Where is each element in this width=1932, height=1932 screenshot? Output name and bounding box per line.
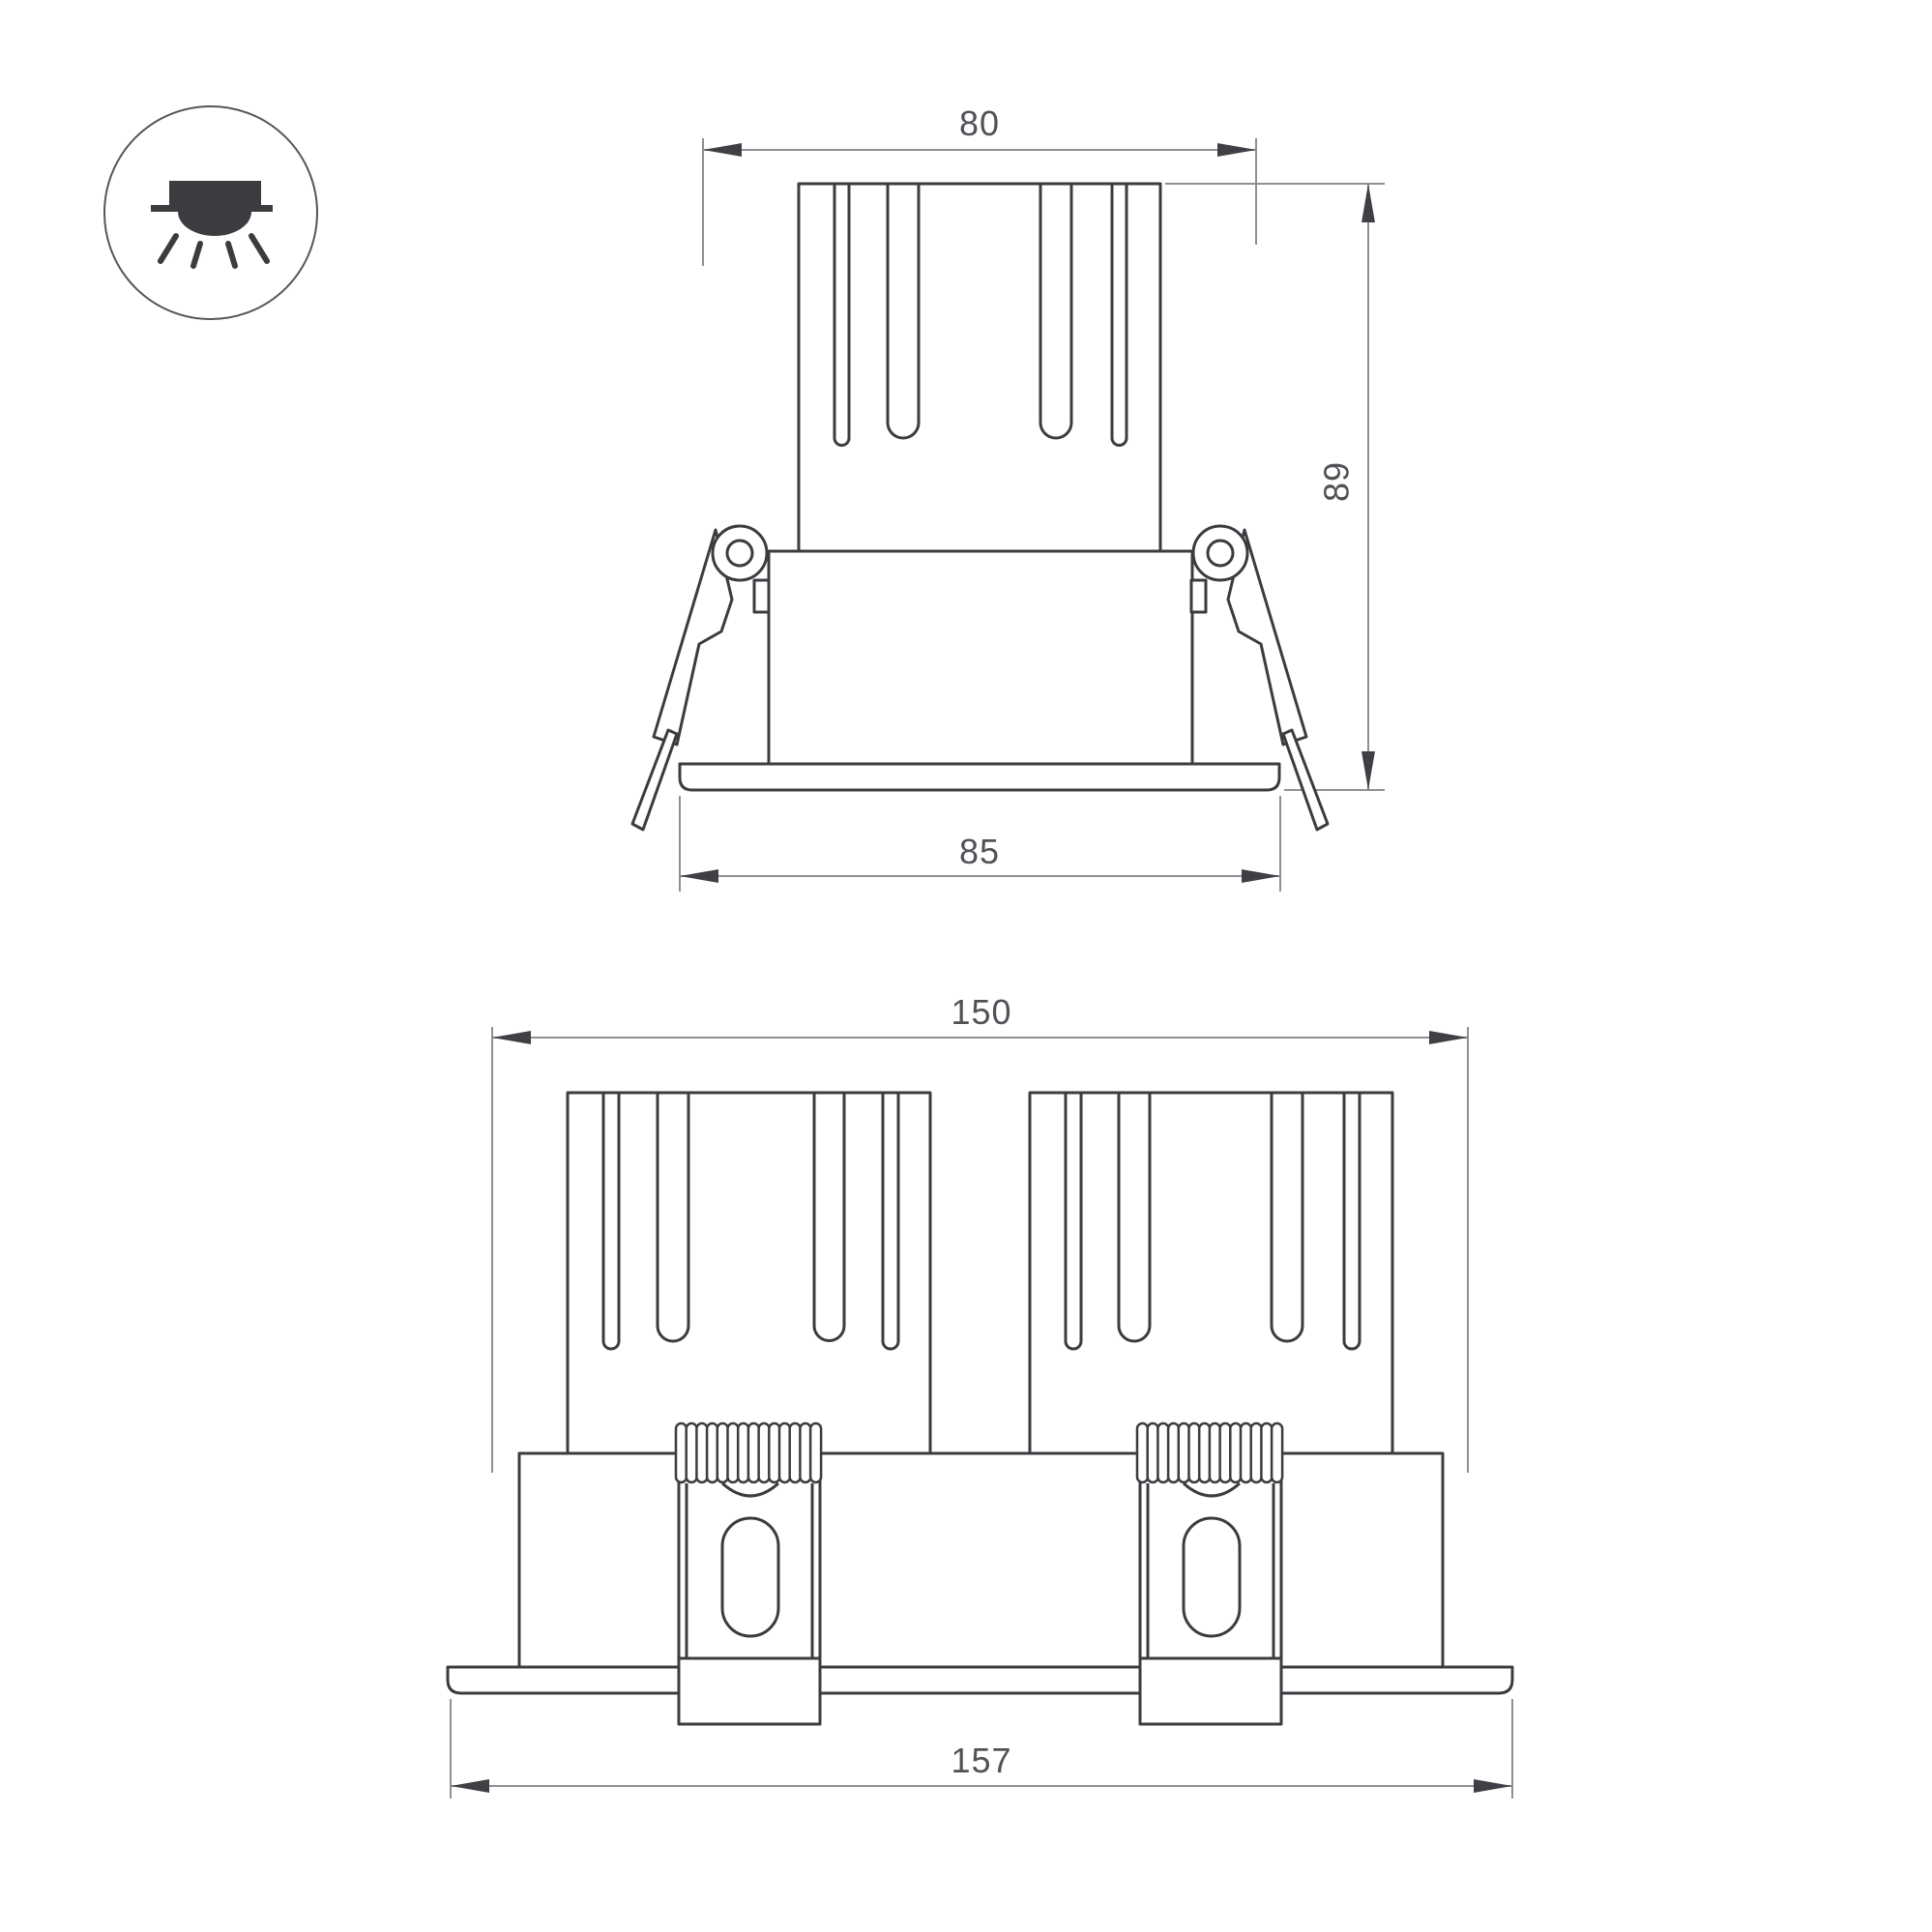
double-flange <box>448 1667 1512 1693</box>
front-view: 80 89 85 <box>632 103 1385 892</box>
clamp-coil <box>676 1423 821 1482</box>
fin-slot <box>834 184 849 446</box>
heatsink-right <box>1030 1093 1392 1453</box>
double-dimension-labels: 150 157 <box>951 992 1011 1780</box>
dim-label-flange-width: 85 <box>959 832 1000 871</box>
fin-slot <box>1272 1093 1303 1341</box>
fin-slot <box>1112 184 1127 446</box>
icon-light-rays <box>161 236 267 266</box>
heatsink-left <box>568 1093 930 1453</box>
double-dimension-arrows <box>451 1031 1512 1793</box>
technical-drawing: 80 89 85 <box>0 0 1932 1932</box>
recessed-downlight-icon <box>104 106 317 319</box>
dim-label-height: 89 <box>1317 461 1357 502</box>
fin-slot <box>1344 1093 1360 1349</box>
clip-pivot-hole-left <box>727 541 752 566</box>
clip-pivot-hole-right <box>1208 541 1233 566</box>
heatsink <box>799 184 1160 551</box>
fin-slot <box>658 1093 688 1341</box>
double-view: 150 157 <box>448 992 1512 1799</box>
front-outlines <box>680 184 1279 790</box>
flange <box>680 764 1279 790</box>
clip-tab-left <box>754 580 769 612</box>
clamp-foot <box>1140 1658 1281 1724</box>
fin-slot <box>814 1093 844 1340</box>
fin-slot <box>888 184 919 438</box>
clamp-foot <box>679 1658 820 1724</box>
icon-flange-bar <box>151 205 273 212</box>
double-dimension-lines <box>451 1027 1512 1799</box>
icon-dome <box>178 212 251 236</box>
front-spring-clips <box>632 526 1328 830</box>
icon-fixture <box>151 181 273 236</box>
drawing-page: 80 89 85 <box>0 0 1932 1932</box>
clip-leaf-right <box>1283 730 1328 830</box>
lamp-body <box>769 551 1192 764</box>
fin-slot <box>1119 1093 1150 1341</box>
double-body <box>519 1453 1443 1667</box>
wire-clamp-right <box>1137 1423 1282 1724</box>
fin-slot <box>603 1093 619 1349</box>
dim-label-cutout-width: 80 <box>959 103 1000 143</box>
double-outlines <box>448 1093 1512 1693</box>
icon-fixture-body <box>169 181 261 208</box>
front-dimension-arrows <box>680 143 1375 883</box>
clip-leaf-left <box>632 730 677 830</box>
dim-label-body-width: 150 <box>951 992 1011 1032</box>
clamp-coil <box>1137 1423 1282 1482</box>
dim-label-double-flange-width: 157 <box>951 1741 1011 1780</box>
wire-clamp-left <box>676 1423 821 1724</box>
fin-slot <box>1040 184 1071 438</box>
fin-slot <box>883 1093 898 1349</box>
clip-tab-right <box>1191 580 1206 612</box>
fin-slot <box>1066 1093 1081 1349</box>
